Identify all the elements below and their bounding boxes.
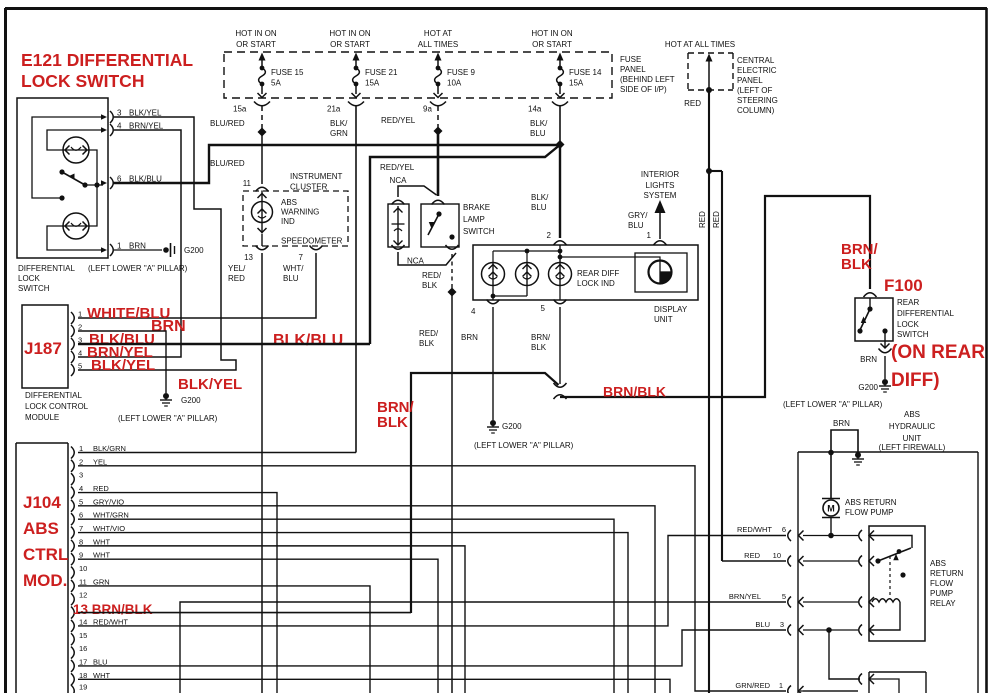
svg-text:SYSTEM: SYSTEM bbox=[644, 191, 677, 200]
svg-text:J187: J187 bbox=[24, 339, 62, 358]
svg-text:6: 6 bbox=[782, 525, 786, 534]
svg-text:LIGHTS: LIGHTS bbox=[646, 181, 675, 190]
svg-text:BLU/RED: BLU/RED bbox=[210, 159, 245, 168]
svg-text:2: 2 bbox=[79, 457, 83, 466]
svg-text:8: 8 bbox=[79, 537, 83, 546]
svg-text:(LEFT LOWER "A" PILLAR): (LEFT LOWER "A" PILLAR) bbox=[474, 441, 574, 450]
svg-text:SWITCH: SWITCH bbox=[463, 227, 495, 236]
svg-text:9: 9 bbox=[79, 551, 83, 560]
svg-text:ABS: ABS bbox=[281, 198, 297, 207]
svg-text:ABS RETURN: ABS RETURN bbox=[845, 498, 897, 507]
svg-text:WHT: WHT bbox=[93, 537, 110, 546]
svg-text:GRN/RED: GRN/RED bbox=[735, 681, 770, 690]
svg-text:BLK/: BLK/ bbox=[530, 119, 548, 128]
svg-text:J104: J104 bbox=[23, 493, 61, 512]
svg-text:WHT: WHT bbox=[93, 671, 110, 680]
svg-text:BLK: BLK bbox=[422, 281, 438, 290]
svg-text:COLUMN): COLUMN) bbox=[737, 106, 775, 115]
svg-text:17: 17 bbox=[79, 657, 87, 666]
svg-text:FUSE 15: FUSE 15 bbox=[271, 68, 304, 77]
svg-text:BRN/BLK: BRN/BLK bbox=[603, 384, 666, 400]
svg-text:BLU: BLU bbox=[530, 129, 546, 138]
svg-text:LOCK: LOCK bbox=[18, 274, 40, 283]
svg-text:BLK: BLK bbox=[377, 414, 408, 431]
svg-text:(BEHIND LEFT: (BEHIND LEFT bbox=[620, 75, 675, 84]
svg-text:BLK: BLK bbox=[419, 339, 435, 348]
svg-text:4: 4 bbox=[79, 484, 83, 493]
svg-text:BRN/YEL: BRN/YEL bbox=[729, 592, 761, 601]
svg-text:15A: 15A bbox=[569, 79, 584, 88]
svg-text:BLK/YEL: BLK/YEL bbox=[178, 376, 242, 393]
svg-text:ABS: ABS bbox=[23, 519, 59, 538]
svg-text:OR START: OR START bbox=[330, 40, 370, 49]
svg-text:DIFFERENTIAL: DIFFERENTIAL bbox=[25, 391, 82, 400]
svg-text:BLU: BLU bbox=[755, 620, 770, 629]
svg-text:RED: RED bbox=[228, 274, 245, 283]
svg-text:(LEFT OF: (LEFT OF bbox=[737, 86, 773, 95]
svg-text:7: 7 bbox=[79, 524, 83, 533]
svg-text:MODULE: MODULE bbox=[25, 413, 59, 422]
svg-text:10: 10 bbox=[773, 551, 781, 560]
svg-text:RED: RED bbox=[712, 211, 721, 228]
svg-text:GRY/VIO: GRY/VIO bbox=[93, 497, 124, 506]
svg-text:13 BRN/BLK: 13 BRN/BLK bbox=[73, 602, 153, 617]
svg-text:BRN: BRN bbox=[151, 318, 186, 335]
svg-text:BLU: BLU bbox=[283, 274, 299, 283]
svg-text:PANEL: PANEL bbox=[620, 65, 646, 74]
svg-text:RED: RED bbox=[93, 484, 109, 493]
svg-text:LAMP: LAMP bbox=[463, 215, 485, 224]
svg-text:BLK/YEL: BLK/YEL bbox=[91, 357, 155, 374]
svg-text:E121 DIFFERENTIAL: E121 DIFFERENTIAL bbox=[21, 50, 193, 70]
svg-text:WARNING: WARNING bbox=[281, 208, 319, 217]
svg-text:4: 4 bbox=[117, 122, 122, 131]
svg-text:15A: 15A bbox=[365, 79, 380, 88]
svg-text:F100: F100 bbox=[884, 276, 923, 295]
svg-text:(LEFT LOWER "A" PILLAR): (LEFT LOWER "A" PILLAR) bbox=[118, 414, 218, 423]
svg-text:HOT AT: HOT AT bbox=[424, 29, 452, 38]
svg-text:BLK/GRN: BLK/GRN bbox=[93, 444, 126, 453]
svg-text:RED: RED bbox=[684, 99, 701, 108]
svg-text:3: 3 bbox=[79, 471, 83, 480]
svg-text:IND: IND bbox=[281, 217, 295, 226]
svg-text:BLK/: BLK/ bbox=[531, 193, 549, 202]
svg-text:FUSE 14: FUSE 14 bbox=[569, 68, 602, 77]
svg-text:DIFFERENTIAL: DIFFERENTIAL bbox=[18, 264, 75, 273]
svg-text:G200: G200 bbox=[181, 396, 201, 405]
svg-text:SWITCH: SWITCH bbox=[18, 284, 50, 293]
svg-text:6: 6 bbox=[117, 175, 122, 184]
svg-text:HYDRAULIC: HYDRAULIC bbox=[889, 422, 935, 431]
svg-text:DIFFERENTIAL: DIFFERENTIAL bbox=[897, 309, 954, 318]
svg-text:WHT/: WHT/ bbox=[283, 264, 304, 273]
svg-text:10A: 10A bbox=[447, 79, 462, 88]
svg-text:STEERING: STEERING bbox=[737, 96, 778, 105]
svg-text:5: 5 bbox=[541, 304, 546, 313]
svg-text:(ON REAR: (ON REAR bbox=[891, 342, 985, 363]
svg-text:FUSE 21: FUSE 21 bbox=[365, 68, 398, 77]
svg-text:BRN: BRN bbox=[129, 242, 146, 251]
svg-text:1: 1 bbox=[117, 242, 122, 251]
svg-text:BLK/BLU: BLK/BLU bbox=[129, 175, 162, 184]
svg-text:11: 11 bbox=[79, 577, 87, 586]
svg-text:14a: 14a bbox=[528, 105, 542, 114]
svg-text:7: 7 bbox=[299, 253, 304, 262]
svg-text:19: 19 bbox=[79, 683, 87, 692]
svg-text:HOT AT ALL TIMES: HOT AT ALL TIMES bbox=[665, 40, 735, 49]
svg-text:RED/: RED/ bbox=[419, 329, 439, 338]
svg-text:SWITCH: SWITCH bbox=[897, 330, 929, 339]
svg-text:CTRL: CTRL bbox=[23, 545, 68, 564]
svg-text:9a: 9a bbox=[423, 105, 432, 114]
svg-text:NCA: NCA bbox=[390, 176, 408, 185]
svg-text:1: 1 bbox=[647, 231, 652, 240]
svg-text:BRN: BRN bbox=[461, 333, 478, 342]
svg-text:SIDE OF I/P): SIDE OF I/P) bbox=[620, 85, 667, 94]
svg-text:OR START: OR START bbox=[236, 40, 276, 49]
svg-text:5: 5 bbox=[782, 592, 786, 601]
svg-text:BRN/YEL: BRN/YEL bbox=[129, 122, 164, 131]
svg-text:DIFF): DIFF) bbox=[891, 370, 940, 391]
svg-text:UNIT: UNIT bbox=[654, 315, 673, 324]
svg-text:1: 1 bbox=[78, 310, 82, 319]
svg-text:15: 15 bbox=[79, 631, 87, 640]
svg-text:LOCK SWITCH: LOCK SWITCH bbox=[21, 71, 144, 91]
svg-text:PANEL: PANEL bbox=[737, 76, 763, 85]
svg-text:21a: 21a bbox=[327, 105, 341, 114]
svg-text:GRY/: GRY/ bbox=[628, 211, 648, 220]
svg-text:WHT: WHT bbox=[93, 551, 110, 560]
svg-text:5: 5 bbox=[78, 362, 82, 371]
svg-text:FUSE 9: FUSE 9 bbox=[447, 68, 476, 77]
svg-text:FUSE: FUSE bbox=[620, 55, 641, 64]
svg-text:BLU: BLU bbox=[93, 657, 108, 666]
svg-text:(LEFT FIREWALL): (LEFT FIREWALL) bbox=[879, 443, 946, 452]
svg-text:RED: RED bbox=[698, 211, 707, 228]
svg-text:M: M bbox=[827, 504, 835, 514]
svg-text:RED/WHT: RED/WHT bbox=[93, 617, 128, 626]
svg-text:LOCK: LOCK bbox=[897, 320, 919, 329]
svg-text:BRAKE: BRAKE bbox=[463, 203, 490, 212]
svg-text:NCA: NCA bbox=[407, 257, 425, 266]
svg-text:INTERIOR: INTERIOR bbox=[641, 170, 679, 179]
svg-text:1: 1 bbox=[79, 444, 83, 453]
svg-text:2: 2 bbox=[78, 323, 82, 332]
svg-text:G200: G200 bbox=[858, 383, 878, 392]
svg-text:BRN/: BRN/ bbox=[531, 333, 551, 342]
svg-text:RED/YEL: RED/YEL bbox=[381, 116, 416, 125]
svg-text:LOCK IND: LOCK IND bbox=[577, 279, 615, 288]
svg-text:WHT/GRN: WHT/GRN bbox=[93, 511, 129, 520]
svg-text:CLUSTER: CLUSTER bbox=[290, 183, 328, 192]
svg-text:18: 18 bbox=[79, 671, 87, 680]
svg-text:BLK/: BLK/ bbox=[330, 119, 348, 128]
svg-text:GRN: GRN bbox=[330, 129, 348, 138]
svg-text:BLU/RED: BLU/RED bbox=[210, 119, 245, 128]
svg-text:PUMP: PUMP bbox=[930, 589, 953, 598]
svg-text:G200: G200 bbox=[184, 246, 204, 255]
svg-text:BLK: BLK bbox=[841, 256, 872, 273]
svg-text:RED: RED bbox=[744, 551, 760, 560]
svg-text:14: 14 bbox=[79, 617, 87, 626]
svg-text:BLK/YEL: BLK/YEL bbox=[129, 109, 162, 118]
svg-text:5A: 5A bbox=[271, 79, 281, 88]
svg-text:BLU: BLU bbox=[628, 221, 644, 230]
svg-text:RELAY: RELAY bbox=[930, 599, 956, 608]
svg-text:BRN: BRN bbox=[860, 355, 877, 364]
svg-text:13: 13 bbox=[244, 253, 253, 262]
svg-text:3: 3 bbox=[117, 109, 122, 118]
svg-text:G200: G200 bbox=[502, 422, 522, 431]
svg-text:HOT IN ON: HOT IN ON bbox=[235, 29, 276, 38]
svg-text:ELECTRIC: ELECTRIC bbox=[737, 66, 777, 75]
svg-text:YEL: YEL bbox=[93, 457, 107, 466]
svg-text:MOD.: MOD. bbox=[23, 571, 67, 590]
svg-text:4: 4 bbox=[471, 307, 476, 316]
svg-text:LOCK CONTROL: LOCK CONTROL bbox=[25, 402, 89, 411]
svg-text:OR START: OR START bbox=[532, 40, 572, 49]
svg-text:4: 4 bbox=[78, 349, 82, 358]
svg-text:ALL TIMES: ALL TIMES bbox=[418, 40, 458, 49]
svg-text:16: 16 bbox=[79, 644, 87, 653]
svg-text:REAR DIFF: REAR DIFF bbox=[577, 269, 619, 278]
svg-text:FLOW PUMP: FLOW PUMP bbox=[845, 508, 893, 517]
svg-text:BLU: BLU bbox=[531, 203, 547, 212]
svg-text:HOT IN ON: HOT IN ON bbox=[329, 29, 370, 38]
svg-text:RETURN: RETURN bbox=[930, 569, 964, 578]
svg-text:RED/YEL: RED/YEL bbox=[380, 163, 415, 172]
svg-text:HOT IN ON: HOT IN ON bbox=[531, 29, 572, 38]
svg-text:DISPLAY: DISPLAY bbox=[654, 305, 688, 314]
svg-text:GRN: GRN bbox=[93, 577, 110, 586]
svg-text:(LEFT LOWER "A" PILLAR): (LEFT LOWER "A" PILLAR) bbox=[88, 264, 188, 273]
svg-text:3: 3 bbox=[780, 620, 784, 629]
svg-text:ABS: ABS bbox=[930, 559, 946, 568]
svg-text:5: 5 bbox=[79, 497, 83, 506]
svg-text:10: 10 bbox=[79, 564, 87, 573]
svg-text:1: 1 bbox=[779, 681, 783, 690]
svg-text:RED/: RED/ bbox=[422, 271, 442, 280]
svg-text:SPEEDOMETER: SPEEDOMETER bbox=[281, 237, 343, 246]
svg-text:WHT/VIO: WHT/VIO bbox=[93, 524, 125, 533]
svg-text:ABS: ABS bbox=[904, 410, 920, 419]
svg-text:RED/WHT: RED/WHT bbox=[737, 525, 772, 534]
svg-text:12: 12 bbox=[79, 591, 87, 600]
svg-text:INSTRUMENT: INSTRUMENT bbox=[290, 172, 343, 181]
svg-text:FLOW: FLOW bbox=[930, 579, 954, 588]
svg-text:YEL/: YEL/ bbox=[228, 264, 246, 273]
svg-text:BLK: BLK bbox=[531, 343, 547, 352]
svg-text:BRN: BRN bbox=[833, 419, 850, 428]
svg-text:2: 2 bbox=[547, 231, 552, 240]
svg-text:UNIT: UNIT bbox=[903, 434, 922, 443]
svg-text:CENTRAL: CENTRAL bbox=[737, 56, 775, 65]
svg-text:REAR: REAR bbox=[897, 298, 919, 307]
svg-text:15a: 15a bbox=[233, 105, 247, 114]
svg-text:(LEFT LOWER "A" PILLAR): (LEFT LOWER "A" PILLAR) bbox=[783, 400, 883, 409]
svg-text:11: 11 bbox=[243, 179, 252, 188]
svg-text:6: 6 bbox=[79, 511, 83, 520]
svg-text:BLK/BLU: BLK/BLU bbox=[273, 332, 343, 349]
